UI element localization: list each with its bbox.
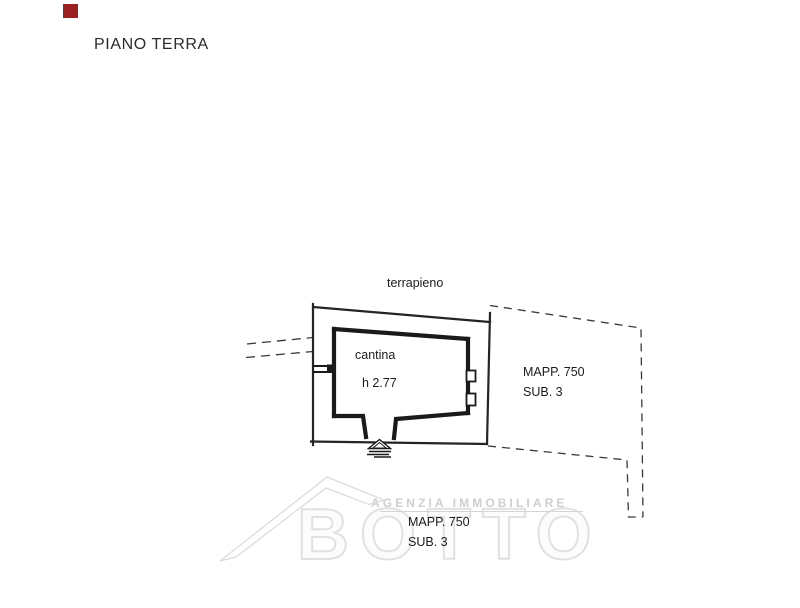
parcel-right-mapp-label: MAPP. 750	[523, 365, 585, 379]
terrapieno-label: terrapieno	[387, 276, 443, 290]
parcel-bottom-mapp-label: MAPP. 750	[408, 515, 470, 529]
room-name-label: cantina	[355, 348, 395, 362]
cantina-room-walls	[334, 329, 468, 438]
building-outer-boundary	[311, 304, 490, 445]
room-height-label: h 2.77	[362, 376, 397, 390]
floor-plan-drawing	[0, 0, 800, 608]
left-wall-passage	[313, 365, 334, 374]
parcel-dashed-boundary	[488, 306, 643, 518]
parcel-bottom-sub-label: SUB. 3	[408, 535, 448, 549]
dashed-lines-left	[246, 338, 313, 358]
watermark-roof-icon	[220, 477, 384, 561]
parcel-right-sub-label: SUB. 3	[523, 385, 563, 399]
